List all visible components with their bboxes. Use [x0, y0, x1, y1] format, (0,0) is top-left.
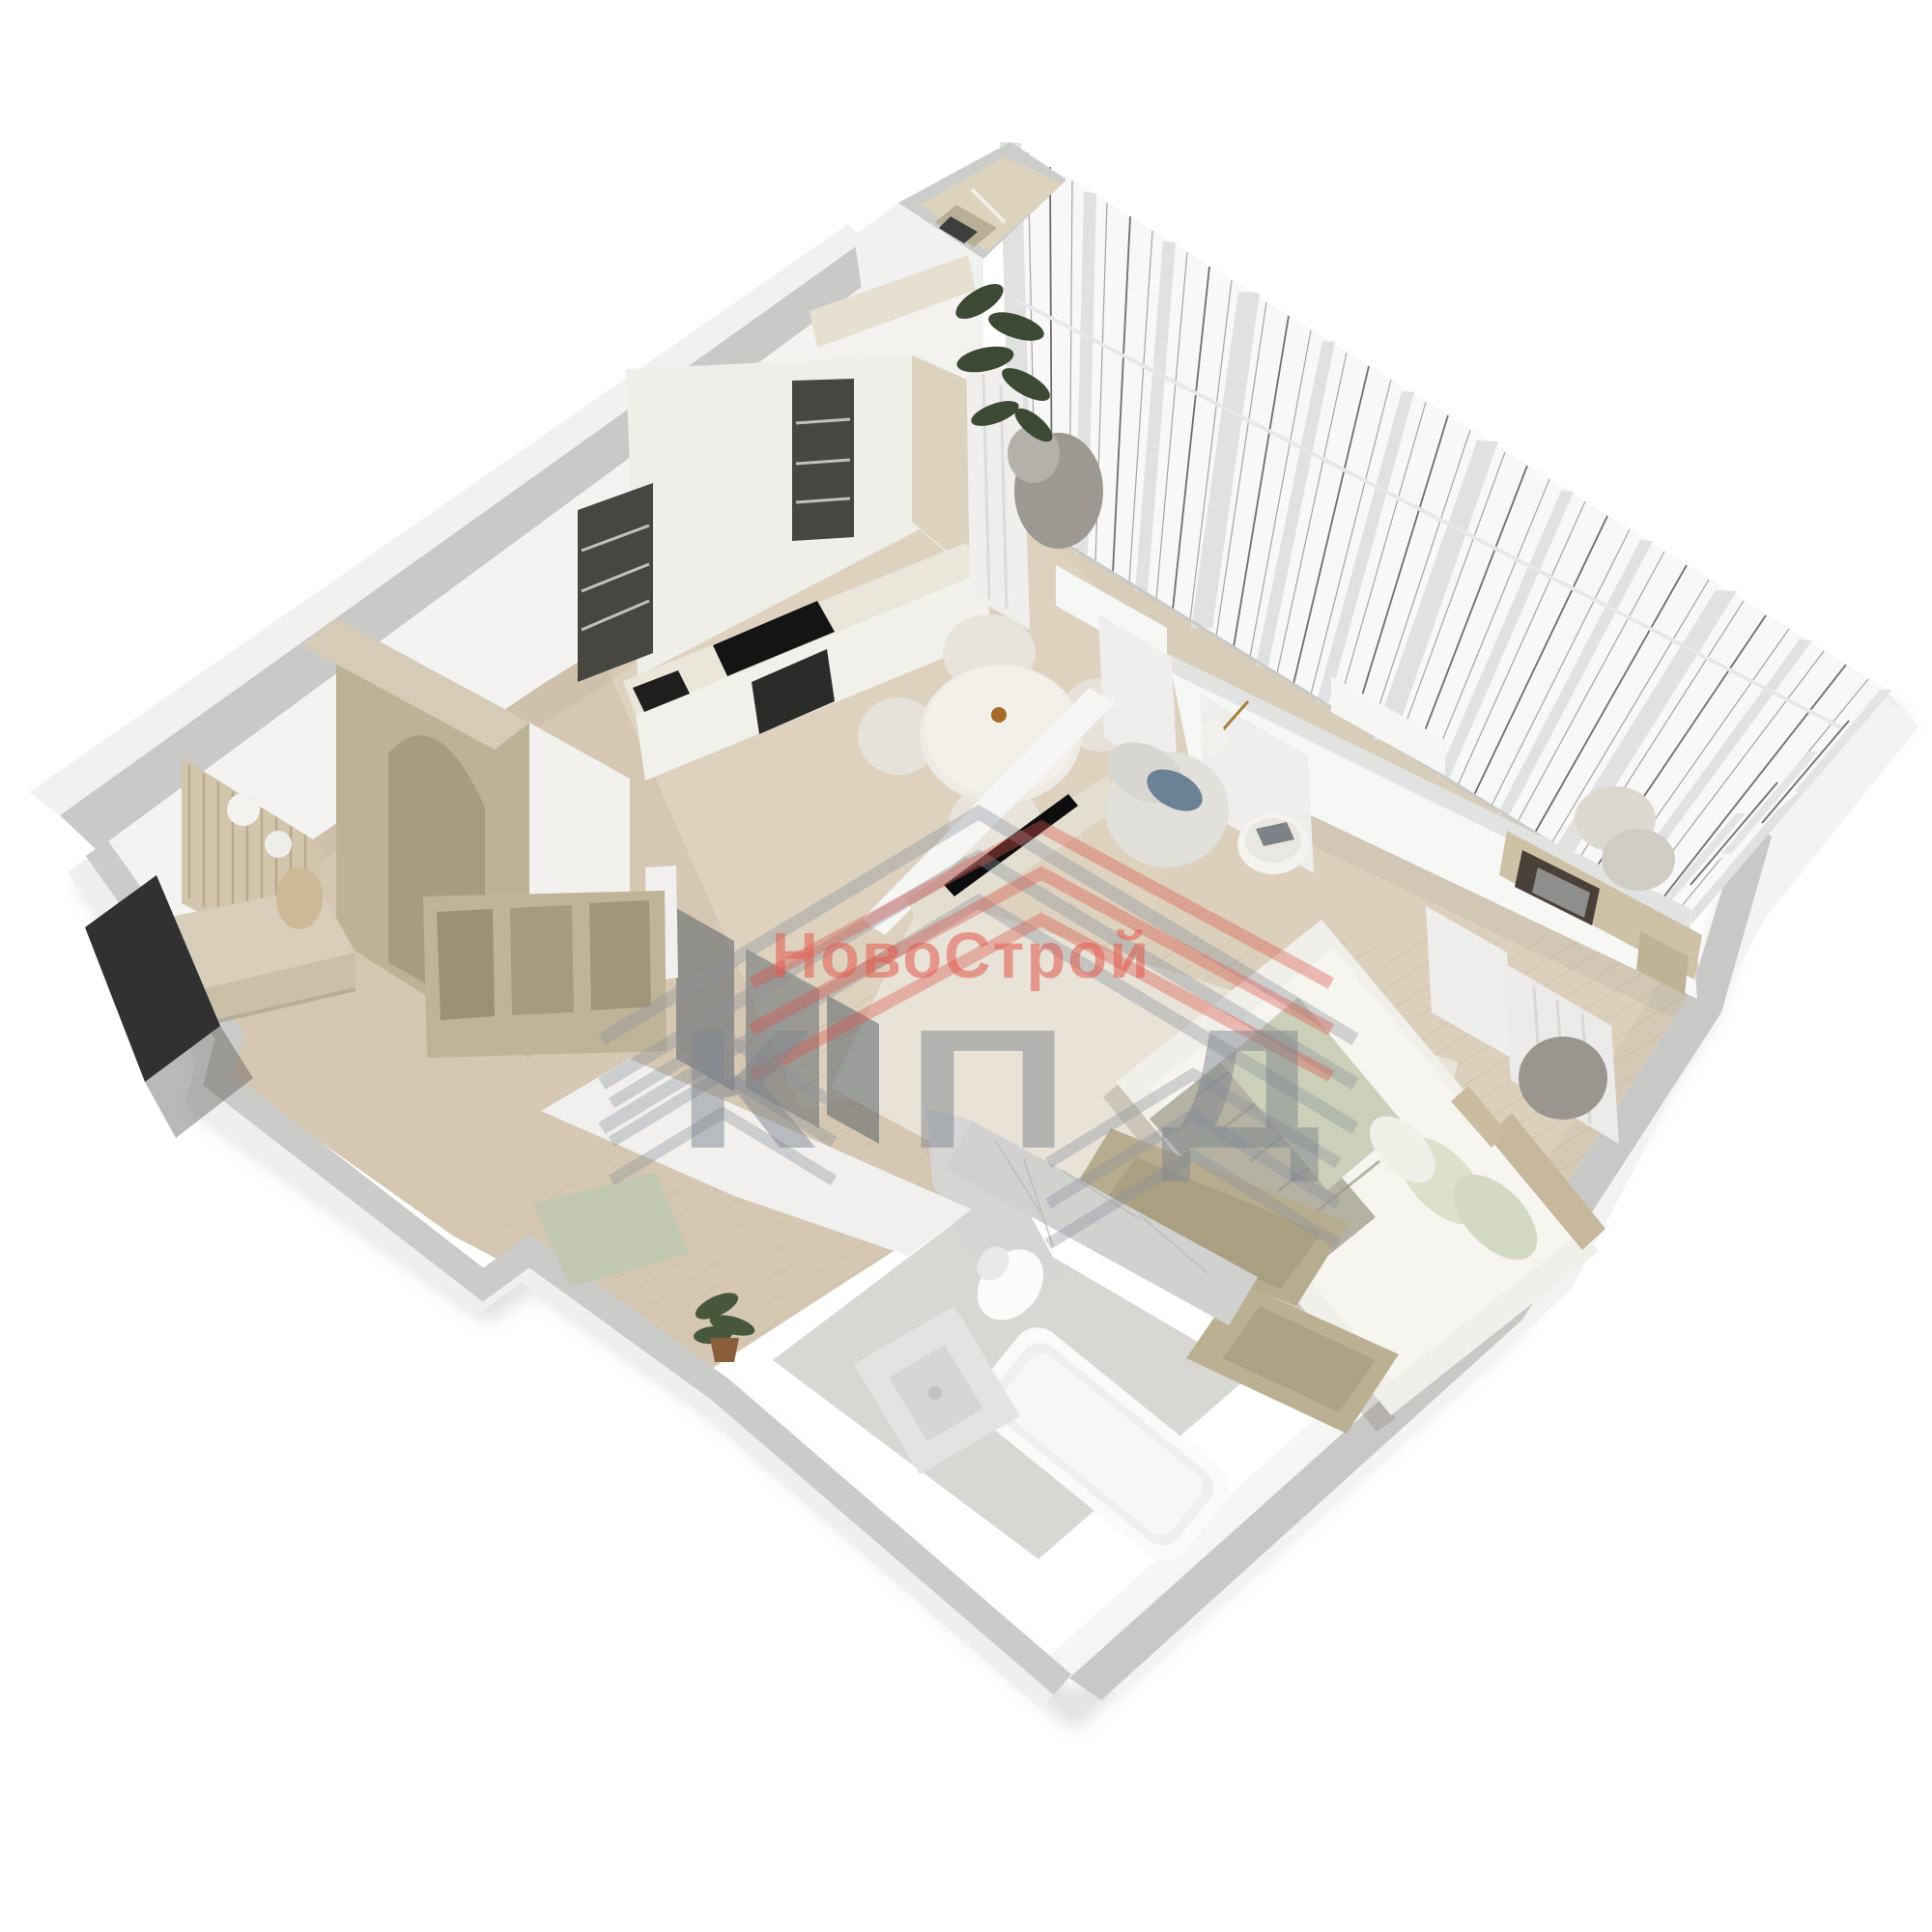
svg-text:НовоСтрой: НовоСтрой — [772, 920, 1151, 992]
svg-text:КПД: КПД — [676, 995, 1413, 1184]
